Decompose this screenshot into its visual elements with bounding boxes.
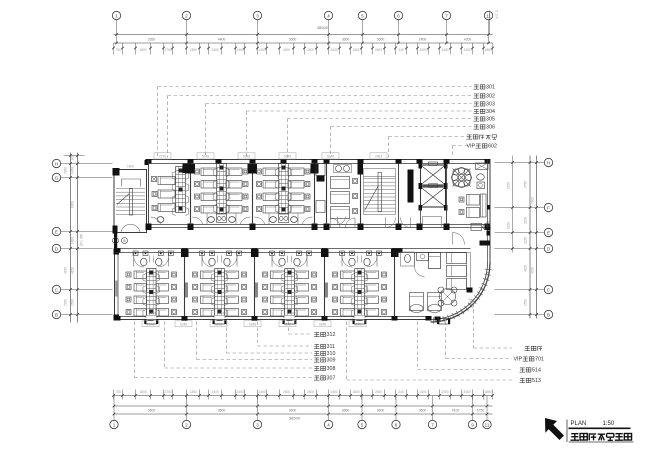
svg-text:2400: 2400 [330,390,337,394]
svg-text:2750: 2750 [524,181,528,188]
svg-text:4100: 4100 [524,265,528,272]
svg-text:E: E [55,229,58,234]
svg-text:4100: 4100 [452,408,460,412]
svg-text:PLAN: PLAN [571,421,587,427]
svg-text:G: G [55,175,59,180]
svg-text:2400: 2400 [441,48,448,52]
svg-text:2400: 2400 [419,390,426,394]
svg-text:1043: 1043 [289,311,296,315]
svg-text:2400: 2400 [330,48,337,52]
svg-text:E: E [547,230,550,235]
svg-text:9248: 9248 [180,322,187,326]
svg-text:307: 307 [327,376,336,382]
svg-text:602: 602 [488,144,497,150]
svg-text:2400: 2400 [236,48,243,52]
svg-text:1800: 1800 [139,48,146,52]
svg-text:5248: 5248 [202,155,209,159]
svg-text:4150: 4150 [71,267,75,274]
svg-text:9248: 9248 [147,322,154,326]
svg-text:2400: 2400 [211,390,218,394]
svg-text:302: 302 [486,94,495,100]
svg-text:7900: 7900 [531,197,535,204]
svg-text:3350: 3350 [148,38,156,42]
svg-text:3600: 3600 [218,408,226,412]
svg-text:9248: 9248 [319,322,326,326]
svg-text:4150: 4150 [64,267,68,274]
svg-text:2400: 2400 [441,390,448,394]
svg-text:9248: 9248 [354,322,361,326]
svg-text:11: 11 [485,422,490,427]
svg-text:514: 514 [532,368,541,374]
svg-text:306: 306 [486,125,495,131]
svg-text:2463: 2463 [375,155,382,159]
svg-text:240: 240 [398,390,404,394]
svg-text:2700: 2700 [164,390,171,394]
svg-text:7900: 7900 [64,167,68,174]
svg-text:9248: 9248 [284,322,291,326]
svg-text:H: H [547,160,550,165]
svg-text:1450: 1450 [71,167,75,174]
svg-text:513: 513 [532,378,541,384]
svg-text:1860: 1860 [484,48,491,52]
svg-text:2400: 2400 [419,38,427,42]
svg-text:3600: 3600 [289,408,297,412]
svg-text:900: 900 [71,155,75,161]
svg-text:2400: 2400 [307,48,314,52]
svg-text:B: B [55,312,58,317]
svg-text:750: 750 [115,390,121,394]
svg-text:1750: 1750 [477,408,485,412]
svg-text:3600: 3600 [342,38,350,42]
svg-text:38500: 38500 [317,25,329,30]
svg-text:305: 305 [486,117,495,123]
svg-text:1:50: 1:50 [603,421,615,427]
svg-text:2400: 2400 [283,48,290,52]
svg-text:2150: 2150 [507,182,511,189]
svg-text:2150: 2150 [524,217,528,224]
svg-text:1800: 1800 [71,237,75,244]
svg-text:2400: 2400 [419,48,426,52]
svg-text:308: 308 [327,366,336,372]
svg-text:2400: 2400 [463,48,470,52]
svg-text:3600: 3600 [377,408,385,412]
svg-text:2550: 2550 [524,299,528,306]
svg-text:240: 240 [398,48,404,52]
svg-text:4700: 4700 [531,267,535,274]
svg-text:380: 380 [80,234,84,240]
svg-text:H: H [55,161,58,166]
svg-text:1400: 1400 [258,390,265,394]
svg-text:(2F): (2F) [80,241,84,247]
svg-text:2400: 2400 [375,390,382,394]
svg-text:2400: 2400 [283,390,290,394]
svg-text:2400: 2400 [236,390,243,394]
svg-text:1350: 1350 [189,48,196,52]
svg-text:1350: 1350 [189,390,196,394]
svg-text:1400: 1400 [127,165,134,169]
svg-text:701: 701 [535,357,544,363]
svg-text:2400: 2400 [375,48,382,52]
svg-text:3600: 3600 [342,408,350,412]
svg-text:4200: 4200 [464,38,472,42]
svg-text:1150: 1150 [524,237,528,244]
svg-text:1043: 1043 [149,311,156,315]
svg-text:2500: 2500 [71,299,75,306]
svg-text:1800: 1800 [352,390,359,394]
svg-text:2400: 2400 [307,390,314,394]
svg-text:1400: 1400 [258,48,265,52]
svg-text:F: F [547,205,550,210]
svg-text:2700: 2700 [164,48,171,52]
svg-text:1043: 1043 [219,311,226,315]
svg-text:VIP: VIP [467,144,476,150]
svg-text:2276: 2276 [159,155,166,159]
svg-text:301: 301 [486,85,495,91]
svg-text:1800: 1800 [139,390,146,394]
svg-text:304: 304 [486,109,495,115]
svg-text:5.100: 5.100 [495,10,499,19]
svg-text:11: 11 [486,13,491,18]
svg-text:1800: 1800 [352,48,359,52]
svg-text:6300: 6300 [71,201,75,208]
svg-text:1860: 1860 [484,390,491,394]
svg-text:310: 310 [327,351,336,357]
svg-text:2400: 2400 [211,48,218,52]
svg-text:2950: 2950 [64,299,68,306]
svg-text:2400: 2400 [463,390,470,394]
svg-text:303: 303 [486,102,495,108]
svg-text:3600: 3600 [289,38,297,42]
svg-text:4400: 4400 [218,38,226,42]
svg-text:309: 309 [327,358,336,364]
svg-text:750: 750 [115,48,121,52]
svg-text:9248: 9248 [215,322,222,326]
svg-text:311: 311 [327,344,336,350]
svg-text:9248: 9248 [249,322,256,326]
svg-text:3600: 3600 [377,38,385,42]
svg-text:1150: 1150 [507,222,511,229]
svg-text:312: 312 [327,332,336,338]
svg-text:VIP: VIP [514,357,523,363]
svg-text:3600: 3600 [148,408,156,412]
svg-text:B: B [547,312,550,317]
svg-text:3600: 3600 [419,408,427,412]
svg-text:38500: 38500 [289,416,301,421]
